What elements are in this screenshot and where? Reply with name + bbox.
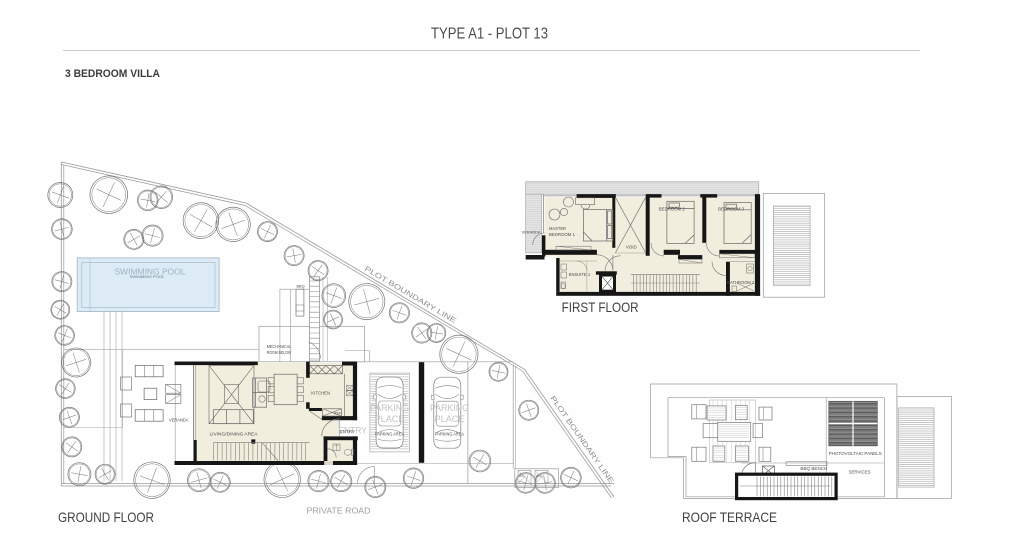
- svg-text:GROUND FLOOR: GROUND FLOOR: [58, 509, 154, 525]
- svg-text:PLACE: PLACE: [435, 414, 465, 424]
- svg-text:BEDROOM 3: BEDROOM 3: [718, 207, 745, 212]
- svg-text:PARKING: PARKING: [370, 403, 409, 413]
- svg-text:PARKING AREA: PARKING AREA: [375, 432, 404, 437]
- svg-text:SERVICES: SERVICES: [849, 470, 871, 475]
- svg-text:MECHANICAL: MECHANICAL: [267, 344, 292, 349]
- svg-text:BBQ BENCH: BBQ BENCH: [800, 466, 827, 471]
- svg-text:ROOF TERRACE: ROOF TERRACE: [682, 509, 777, 525]
- svg-text:PARKING AREA: PARKING AREA: [435, 432, 464, 437]
- svg-text:ROOM BELOW: ROOM BELOW: [267, 350, 292, 355]
- svg-text:ENTRY: ENTRY: [340, 429, 356, 434]
- svg-text:PARKING: PARKING: [430, 403, 469, 413]
- svg-text:VERANDA: VERANDA: [522, 230, 541, 235]
- svg-text:LIVING/DINING AREA: LIVING/DINING AREA: [210, 432, 258, 437]
- svg-text:REF: REF: [334, 412, 342, 416]
- svg-text:BEDROOM 1: BEDROOM 1: [549, 232, 576, 237]
- svg-text:VOID: VOID: [626, 245, 637, 250]
- svg-text:3 BEDROOM VILLA: 3 BEDROOM VILLA: [65, 68, 160, 80]
- svg-text:ENSUITE 1: ENSUITE 1: [569, 272, 591, 277]
- svg-text:SWIMMING POOL: SWIMMING POOL: [130, 274, 166, 279]
- svg-text:MASTER: MASTER: [549, 226, 566, 231]
- svg-text:VERANDA: VERANDA: [169, 418, 189, 423]
- svg-text:PLACE: PLACE: [375, 414, 405, 424]
- svg-text:BBQ: BBQ: [297, 285, 305, 289]
- svg-text:TYPE A1 - PLOT 13: TYPE A1 - PLOT 13: [431, 26, 548, 43]
- svg-text:A/C: A/C: [536, 474, 542, 478]
- svg-text:BEDROOM 2: BEDROOM 2: [659, 207, 686, 212]
- svg-text:PHOTOVOLTAIC PANELS: PHOTOVOLTAIC PANELS: [829, 451, 882, 456]
- svg-text:FIRST FLOOR: FIRST FLOOR: [562, 299, 639, 315]
- svg-text:KITCHEN: KITCHEN: [311, 391, 330, 396]
- svg-text:A/C: A/C: [519, 474, 525, 478]
- svg-text:PRIVATE ROAD: PRIVATE ROAD: [307, 507, 371, 516]
